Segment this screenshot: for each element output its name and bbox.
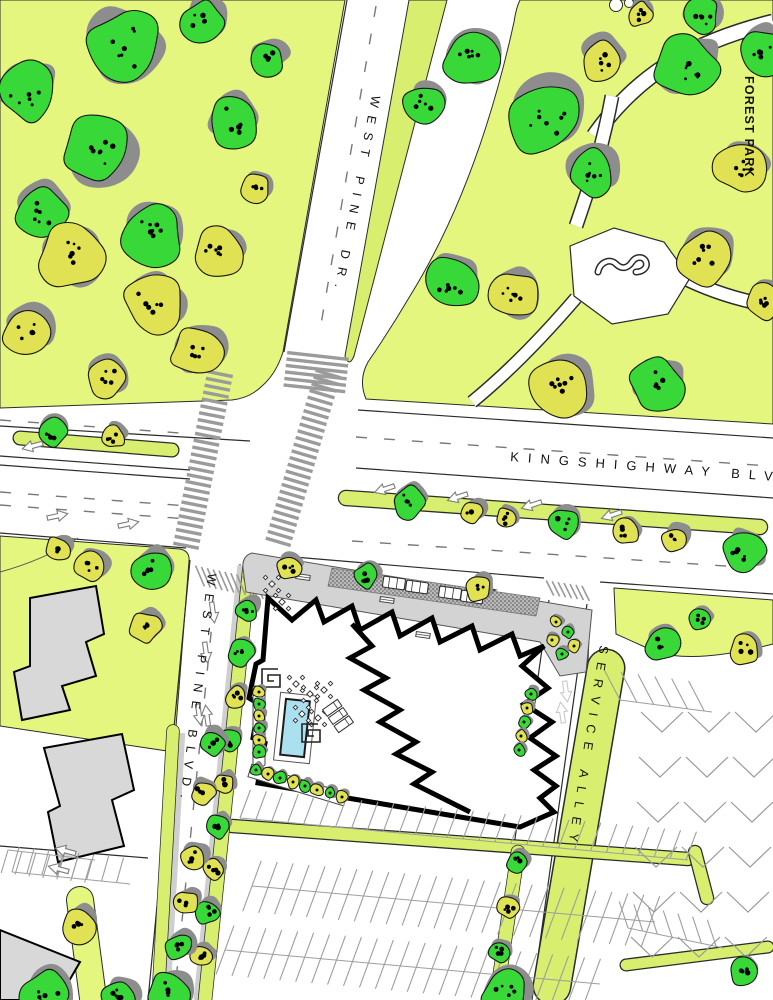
tree-dot bbox=[585, 173, 590, 178]
tree-dot bbox=[136, 292, 141, 297]
shrub-dot bbox=[518, 749, 521, 752]
tree-dot bbox=[163, 981, 167, 985]
tree-dot bbox=[238, 696, 243, 701]
parked-car bbox=[382, 576, 405, 590]
tree-dot bbox=[212, 909, 217, 914]
tree-dot bbox=[34, 209, 38, 213]
tree-dot bbox=[198, 790, 202, 794]
tree-dot bbox=[467, 55, 471, 59]
tree-dot bbox=[560, 389, 565, 394]
tree-dot bbox=[599, 174, 602, 177]
tree-dot bbox=[80, 923, 83, 926]
tree-dot bbox=[150, 310, 155, 315]
site-plan-map: WEST PINE DR. FOREST PARK KINGSHIGHWAY B… bbox=[0, 0, 773, 1000]
tree-dot bbox=[143, 301, 148, 306]
tree-dot bbox=[696, 257, 701, 262]
tree-dot bbox=[600, 69, 603, 72]
tree-dot bbox=[419, 94, 423, 98]
tree-dot bbox=[235, 690, 240, 695]
tree-dot bbox=[18, 101, 21, 104]
tree-dot bbox=[42, 993, 47, 998]
tree-dot bbox=[91, 149, 96, 154]
tree-dot bbox=[35, 201, 40, 206]
tree-dot bbox=[763, 297, 766, 300]
tree-dot bbox=[132, 64, 136, 68]
tree-dot bbox=[77, 246, 80, 249]
tree-dot bbox=[692, 261, 696, 265]
tree-dot bbox=[702, 617, 706, 621]
shrub-dot bbox=[267, 773, 270, 776]
tree-dot bbox=[758, 50, 763, 55]
tree-dot bbox=[769, 46, 772, 49]
tree-dot bbox=[214, 248, 217, 251]
tree-dot bbox=[471, 54, 474, 57]
tree-dot bbox=[28, 97, 32, 101]
tree-dot bbox=[55, 991, 60, 996]
tree-dot bbox=[115, 989, 118, 992]
tree-dot bbox=[414, 104, 419, 109]
tree-dot bbox=[637, 18, 641, 22]
tree-dot bbox=[685, 67, 688, 70]
tree-dot bbox=[291, 569, 296, 574]
tree-dot bbox=[759, 299, 762, 302]
tree-dot bbox=[362, 571, 367, 576]
tree-dot bbox=[131, 27, 135, 31]
tree-dot bbox=[95, 566, 99, 570]
tree-dot bbox=[202, 953, 207, 958]
tree-dot bbox=[112, 369, 117, 374]
tree-dot bbox=[559, 116, 563, 120]
tree-dot bbox=[240, 649, 243, 652]
tree-dot bbox=[569, 376, 573, 380]
tree-dot bbox=[517, 856, 520, 859]
parked-car bbox=[438, 586, 461, 600]
tree-dot bbox=[599, 57, 602, 60]
tree-dot bbox=[73, 243, 76, 246]
tree-dot bbox=[693, 14, 698, 19]
tree-dot bbox=[114, 433, 118, 437]
tree-dot bbox=[748, 649, 754, 655]
tree-dot bbox=[702, 249, 705, 252]
tree-dot bbox=[741, 557, 746, 562]
tree-dot bbox=[215, 738, 219, 742]
shrub-dot bbox=[292, 781, 295, 784]
tree-dot bbox=[207, 912, 212, 917]
tree-dot bbox=[254, 186, 258, 190]
tree-dot bbox=[189, 856, 194, 861]
tree-dot bbox=[602, 52, 607, 57]
tree-dot bbox=[673, 538, 676, 541]
tree-dot bbox=[684, 77, 687, 80]
tree-dot bbox=[37, 995, 41, 999]
tree-dot bbox=[661, 646, 664, 649]
shrub-dot bbox=[258, 739, 261, 742]
tree-dot bbox=[106, 437, 110, 441]
shrub-dot bbox=[316, 789, 319, 792]
tree-dot bbox=[476, 584, 479, 587]
tree bbox=[426, 253, 479, 306]
tree-dot bbox=[544, 121, 549, 126]
tree-dot bbox=[700, 244, 705, 249]
tree-dot bbox=[476, 587, 479, 590]
tree-dot bbox=[9, 94, 12, 97]
tree-dot bbox=[502, 292, 505, 295]
tree-dot bbox=[599, 61, 604, 66]
shrub-dot bbox=[530, 693, 533, 696]
tree-dot bbox=[208, 746, 211, 749]
tree-canopy bbox=[730, 634, 757, 665]
tree-dot bbox=[418, 100, 421, 103]
tree-dot bbox=[251, 610, 254, 613]
tree-dot bbox=[260, 187, 264, 191]
tree-dot bbox=[86, 561, 90, 565]
tree-dot bbox=[696, 618, 700, 622]
shrub-dot bbox=[304, 785, 307, 788]
tree-dot bbox=[512, 989, 516, 993]
tree-dot bbox=[446, 283, 450, 287]
tree-dot bbox=[237, 130, 242, 135]
tree-dot bbox=[176, 947, 180, 951]
tree-dot bbox=[66, 241, 69, 244]
tree-dot bbox=[217, 245, 222, 250]
tree-dot bbox=[37, 990, 40, 993]
shrub-dot bbox=[329, 792, 332, 795]
pool-area bbox=[274, 692, 317, 763]
tree-dot bbox=[669, 533, 672, 536]
tree-dot bbox=[705, 23, 708, 26]
shrub-dot bbox=[520, 735, 523, 738]
tree-dot bbox=[184, 901, 188, 905]
tree-dot bbox=[224, 106, 228, 110]
tree-dot bbox=[213, 825, 217, 829]
tree-dot bbox=[207, 906, 211, 910]
tree-dot bbox=[404, 499, 408, 503]
tree-dot bbox=[151, 233, 156, 238]
tree-dot bbox=[120, 54, 123, 57]
shrub-dot bbox=[255, 769, 258, 772]
tree-dot bbox=[471, 50, 474, 53]
tree-dot bbox=[204, 249, 208, 253]
tree-dot bbox=[511, 293, 514, 296]
tree-dot bbox=[562, 112, 566, 116]
tree-dot bbox=[145, 622, 148, 625]
tree-dot bbox=[37, 90, 41, 94]
tree-dot bbox=[428, 106, 433, 111]
tree-dot bbox=[758, 55, 763, 60]
tree-dot bbox=[501, 985, 504, 988]
tree-dot bbox=[282, 565, 287, 570]
tree-dot bbox=[709, 261, 714, 266]
tree-dot bbox=[231, 127, 234, 130]
tree-dot bbox=[734, 549, 739, 554]
tree-dot bbox=[27, 92, 32, 97]
tree-dot bbox=[17, 325, 21, 329]
shrub-dot bbox=[258, 715, 261, 718]
tree-dot bbox=[197, 355, 201, 359]
tree-dot bbox=[155, 303, 158, 306]
tree-dot bbox=[586, 179, 589, 182]
tree-dot bbox=[208, 244, 213, 249]
tree-dot bbox=[217, 823, 220, 826]
tree-dot bbox=[110, 991, 115, 996]
tree-dot bbox=[706, 244, 711, 249]
tree-dot bbox=[111, 440, 115, 444]
tree-dot bbox=[619, 534, 622, 537]
tree-dot bbox=[215, 870, 220, 875]
tree-dot bbox=[637, 13, 641, 17]
tree-dot bbox=[159, 303, 164, 308]
tree-dot bbox=[75, 921, 79, 925]
shrub-dot bbox=[573, 645, 576, 648]
tree-dot bbox=[738, 649, 743, 654]
car-body bbox=[382, 576, 405, 590]
tree-dot bbox=[743, 555, 746, 558]
tree-dot bbox=[557, 382, 562, 387]
tree-dot bbox=[190, 353, 194, 357]
tree-dot bbox=[592, 174, 596, 178]
tree-dot bbox=[190, 23, 195, 28]
tree-canopy bbox=[689, 609, 711, 630]
tree-dot bbox=[55, 547, 59, 551]
tree-dot bbox=[465, 49, 470, 54]
tree-dot bbox=[506, 512, 509, 515]
tree-dot bbox=[289, 566, 292, 569]
tree-dot bbox=[509, 985, 513, 989]
tree-dot bbox=[165, 987, 170, 992]
tree-dot bbox=[362, 578, 367, 583]
tree-dot bbox=[424, 102, 427, 105]
tree-dot bbox=[494, 987, 499, 992]
tree-dot bbox=[210, 741, 214, 745]
shrub-dot bbox=[258, 727, 261, 730]
tree-dot bbox=[562, 381, 567, 386]
tree-dot bbox=[507, 993, 511, 997]
tree-dot bbox=[233, 695, 236, 698]
tree-dot bbox=[31, 331, 35, 335]
tree-dot bbox=[588, 162, 591, 165]
tree-dot bbox=[48, 435, 53, 440]
tree-dot bbox=[699, 15, 704, 20]
tree-dot bbox=[190, 345, 195, 350]
tree-dot bbox=[458, 290, 463, 295]
tree-dot bbox=[242, 608, 245, 611]
tree-dot bbox=[529, 124, 532, 127]
tree-dot bbox=[503, 521, 508, 526]
tree-dot bbox=[745, 970, 750, 975]
shrub-dot bbox=[555, 621, 558, 624]
tree-dot bbox=[563, 528, 566, 531]
tree-dot bbox=[471, 510, 474, 513]
tree-dot bbox=[177, 898, 182, 903]
tree-dot bbox=[502, 518, 505, 521]
tree-dot bbox=[72, 924, 77, 929]
tree-dot bbox=[740, 969, 744, 973]
park-label-forest-park: FOREST PARK bbox=[742, 76, 756, 178]
tree-dot bbox=[654, 382, 658, 386]
tree-dot bbox=[238, 123, 242, 127]
tree-dot bbox=[100, 377, 104, 381]
tree-dot bbox=[694, 73, 697, 76]
tree-dot bbox=[606, 63, 611, 68]
shrub-dot bbox=[551, 639, 554, 642]
tree-dot bbox=[236, 650, 239, 653]
fountain-circle-large bbox=[610, 0, 623, 12]
tree-dot bbox=[221, 777, 226, 782]
tree-dot bbox=[660, 378, 665, 383]
tree-dot bbox=[228, 743, 233, 748]
tree-dot bbox=[453, 286, 457, 290]
shrub-dot bbox=[279, 777, 282, 780]
tree-dot bbox=[739, 641, 743, 645]
tree-dot bbox=[746, 644, 749, 647]
car-body bbox=[438, 586, 461, 600]
tree-dot bbox=[270, 50, 275, 55]
tree-dot bbox=[202, 19, 207, 24]
tree-dot bbox=[151, 559, 155, 563]
tree-dot bbox=[409, 503, 412, 506]
tree-dot bbox=[179, 942, 184, 947]
tree-dot bbox=[567, 518, 570, 521]
tree-dot bbox=[482, 586, 485, 589]
tree-dot bbox=[110, 143, 115, 148]
tree-dot bbox=[553, 385, 557, 389]
tree-dot bbox=[122, 46, 127, 51]
tree-dot bbox=[98, 149, 102, 153]
tree-dot bbox=[219, 253, 222, 256]
tree-dot bbox=[46, 221, 51, 226]
tree-dot bbox=[465, 511, 468, 514]
tree-dot bbox=[69, 254, 73, 258]
tree-dot bbox=[764, 301, 769, 306]
tree-dot bbox=[496, 951, 501, 956]
tree-dot bbox=[402, 494, 405, 497]
tree-dot bbox=[639, 8, 643, 12]
tree-dot bbox=[696, 614, 700, 618]
tree-dot bbox=[499, 947, 504, 952]
shrub-dot bbox=[341, 796, 344, 799]
parked-car bbox=[405, 580, 428, 594]
tree-dot bbox=[620, 524, 625, 529]
tree-dot bbox=[476, 53, 480, 57]
tree-dot bbox=[20, 337, 24, 341]
tree-dot bbox=[458, 52, 462, 56]
tree-dot bbox=[103, 140, 108, 145]
tree-dot bbox=[71, 260, 76, 265]
tree-dot bbox=[110, 40, 115, 45]
shrub-dot bbox=[258, 691, 261, 694]
tree-dot bbox=[104, 162, 107, 165]
tree-dot bbox=[234, 652, 237, 655]
tree-dot bbox=[511, 906, 516, 911]
tree-dot bbox=[200, 13, 205, 18]
tree-dot bbox=[207, 865, 211, 869]
tree-dot bbox=[509, 299, 512, 302]
tree-dot bbox=[33, 323, 36, 326]
tree-dot bbox=[495, 946, 498, 949]
shrub-dot bbox=[258, 751, 261, 754]
tree-dot bbox=[506, 909, 511, 914]
tree-dot bbox=[655, 637, 659, 641]
tree-dot bbox=[507, 287, 510, 290]
tree-canopy bbox=[212, 97, 256, 149]
tree-dot bbox=[146, 568, 150, 572]
tree-dot bbox=[565, 522, 569, 526]
tree-dot bbox=[700, 621, 704, 625]
tree-dot bbox=[654, 370, 658, 374]
tree-dot bbox=[33, 217, 37, 221]
tree-dot bbox=[556, 377, 560, 381]
tree-dot bbox=[154, 222, 159, 227]
tree-dot bbox=[734, 166, 738, 170]
tree-dot bbox=[201, 347, 204, 350]
tree-dot bbox=[623, 534, 627, 538]
tree-dot bbox=[537, 115, 541, 119]
tree-dot bbox=[223, 782, 226, 785]
tree-dot bbox=[518, 296, 522, 300]
shrub-dot bbox=[526, 707, 529, 710]
tree-dot bbox=[555, 516, 561, 522]
tree-dot bbox=[505, 905, 510, 910]
tree-dot bbox=[88, 569, 91, 572]
tree-dot bbox=[437, 287, 442, 292]
tree-dot bbox=[45, 433, 48, 436]
tree-dot bbox=[193, 850, 197, 854]
tree-dot bbox=[538, 110, 541, 113]
shrub-dot bbox=[258, 703, 261, 706]
tree-dot bbox=[554, 131, 559, 136]
tree-dot bbox=[38, 220, 41, 223]
tree-dot bbox=[159, 228, 163, 232]
shrub-dot bbox=[561, 653, 564, 656]
tree-dot bbox=[291, 565, 294, 568]
tree-dot bbox=[140, 220, 143, 223]
tree-dot bbox=[104, 370, 107, 373]
tree-dot bbox=[148, 223, 152, 227]
shrub-dot bbox=[567, 631, 570, 634]
tree-dot bbox=[193, 14, 196, 17]
tree-dot bbox=[266, 57, 271, 62]
tree-dot bbox=[117, 54, 120, 57]
shrub-dot bbox=[523, 721, 526, 724]
tree-dot bbox=[708, 14, 712, 18]
tree bbox=[195, 226, 246, 276]
site-plan-page: WEST PINE DR. FOREST PARK KINGSHIGHWAY B… bbox=[0, 0, 773, 1000]
tree-dot bbox=[752, 53, 755, 56]
tree-dot bbox=[175, 943, 179, 947]
tree-dot bbox=[109, 380, 114, 385]
car-body bbox=[405, 580, 428, 594]
tree-dot bbox=[31, 103, 34, 106]
